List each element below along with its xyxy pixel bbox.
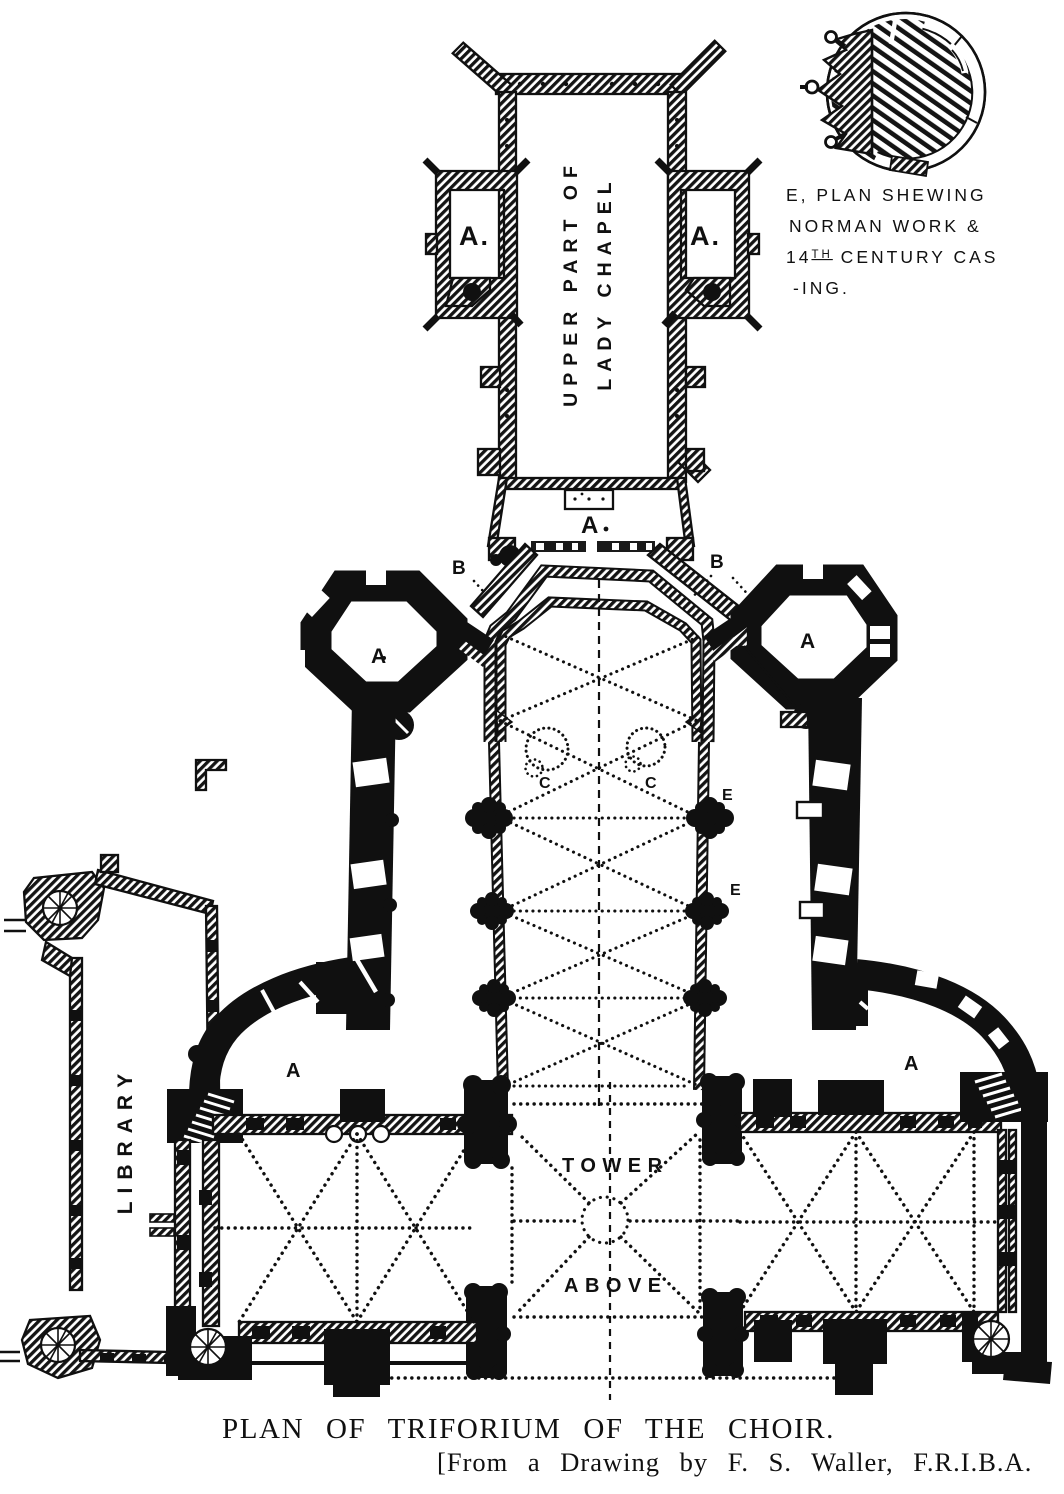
- svg-text:A: A: [800, 630, 815, 653]
- svg-text:NORMAN WORK &: NORMAN WORK &: [789, 216, 982, 236]
- svg-text:A: A: [581, 512, 598, 539]
- svg-text:LIBRARY: LIBRARY: [114, 1066, 137, 1215]
- svg-text:A.: A.: [690, 221, 721, 251]
- svg-text:TOWER: TOWER: [562, 1155, 669, 1177]
- svg-text:E, PLAN SHEWING: E, PLAN SHEWING: [786, 185, 987, 205]
- svg-text:A: A: [286, 1060, 300, 1082]
- svg-text:B: B: [710, 552, 724, 573]
- svg-text:-ING.: -ING.: [793, 278, 850, 298]
- svg-text:E: E: [722, 787, 733, 804]
- svg-text:LADY CHAPEL: LADY CHAPEL: [594, 175, 616, 390]
- svg-text:ABOVE: ABOVE: [564, 1275, 668, 1297]
- svg-text:A.: A.: [459, 221, 490, 251]
- svg-text:E: E: [730, 882, 741, 899]
- svg-text:A: A: [904, 1053, 918, 1075]
- svg-text:C: C: [539, 775, 551, 792]
- svg-text:C: C: [645, 775, 657, 792]
- svg-text:[From a Drawing by F. S. Walle: [From a Drawing by F. S. Waller, F.R.I.B…: [437, 1447, 1032, 1477]
- svg-text:UPPER PART OF: UPPER PART OF: [560, 159, 582, 407]
- svg-text:B: B: [452, 558, 466, 579]
- svg-text:PLAN OF TRIFORIUM OF THE CHOIR: PLAN OF TRIFORIUM OF THE CHOIR.: [222, 1413, 835, 1445]
